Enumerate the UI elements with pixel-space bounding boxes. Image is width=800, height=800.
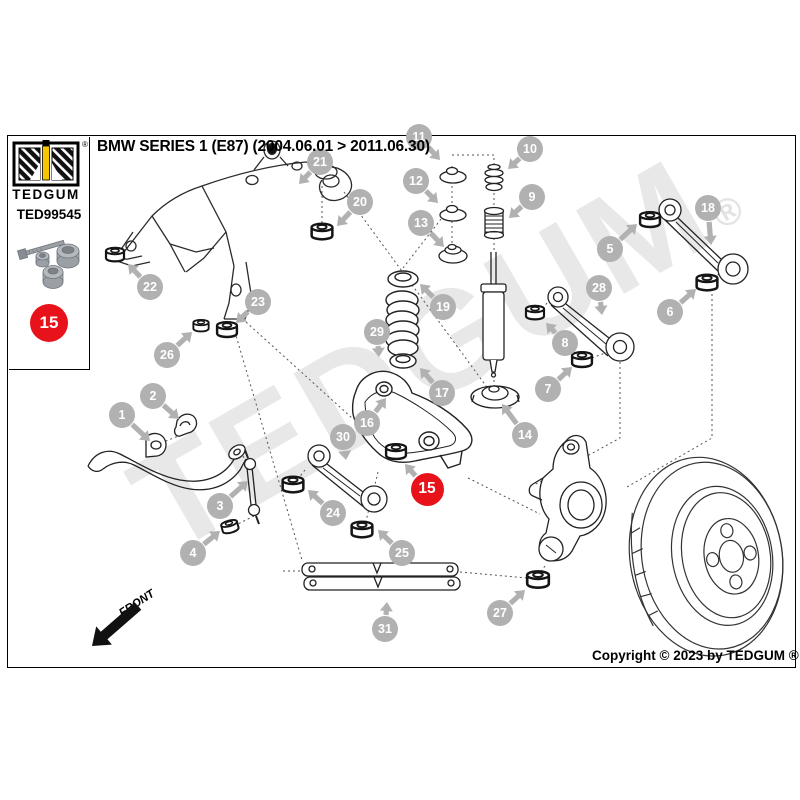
callout-arrow-25 xyxy=(378,530,394,545)
callout-arrow-9 xyxy=(509,205,523,219)
callout-arrow-19 xyxy=(420,284,435,299)
part-info-panel: ® TEDGUM TED99545 xyxy=(9,137,90,370)
callout-arrow-18 xyxy=(704,222,717,245)
copyright-notice: Copyright © 2023 by TEDGUM ® xyxy=(592,648,799,663)
callout-arrow-28 xyxy=(595,302,608,315)
callout-arrow-8 xyxy=(546,323,557,335)
callout-arrow-4 xyxy=(202,531,220,546)
callout-arrow-21 xyxy=(299,170,312,184)
callout-arrow-10 xyxy=(508,157,521,170)
callout-arrow-24 xyxy=(308,490,325,505)
brand-name: TEDGUM xyxy=(12,187,80,202)
tedgum-logo: ® TEDGUM xyxy=(9,137,90,203)
callout-arrow-3 xyxy=(229,481,248,499)
callout-arrow-31 xyxy=(380,602,393,615)
callout-arrow-30 xyxy=(338,450,351,460)
part-number: TED99545 xyxy=(9,207,89,222)
part-photo xyxy=(9,225,90,297)
callout-arrow-17 xyxy=(420,368,435,384)
callout-arrow-23 xyxy=(236,310,250,323)
callout-arrow-6 xyxy=(679,289,696,305)
callout-arrow-26 xyxy=(176,332,193,347)
callout-arrow-2 xyxy=(162,403,179,419)
logo-registered-mark: ® xyxy=(82,140,88,149)
catalog-page: TEDGUM ® xyxy=(0,0,800,800)
callout-arrow-7 xyxy=(557,367,572,382)
callout-arrow-16 xyxy=(373,398,386,413)
callout-arrow-5 xyxy=(619,224,638,241)
callout-arrow-12 xyxy=(424,189,438,203)
callout-arrow-layer xyxy=(0,0,800,800)
page-title: BMW SERIES 1 (E87) (2004.06.01 > 2011.06… xyxy=(97,138,430,156)
callout-arrow-27 xyxy=(509,590,526,605)
callout-arrow-14 xyxy=(502,404,519,425)
callout-arrow-15 xyxy=(405,464,417,478)
callout-arrow-20 xyxy=(337,210,352,226)
part-number-badge: 15 xyxy=(30,304,68,342)
callout-arrow-29 xyxy=(372,346,385,357)
callout-arrow-1 xyxy=(131,423,151,441)
front-arrow xyxy=(92,602,141,646)
callout-arrow-22 xyxy=(128,264,142,279)
callout-arrow-13 xyxy=(429,231,444,247)
